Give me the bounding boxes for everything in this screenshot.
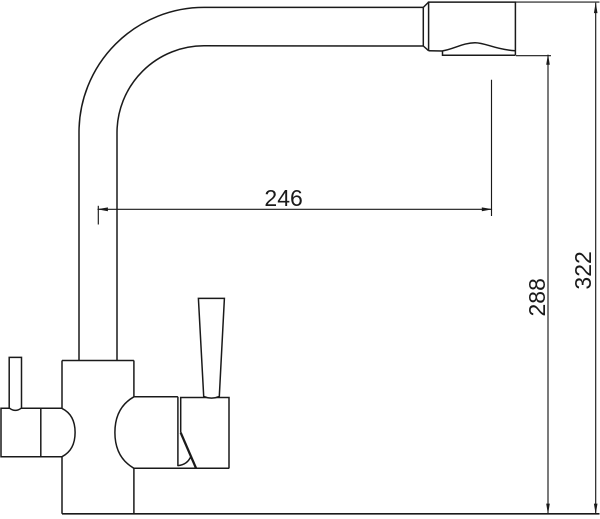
svg-text:288: 288	[524, 278, 550, 316]
svg-text:322: 322	[570, 251, 596, 289]
svg-text:246: 246	[264, 185, 302, 211]
